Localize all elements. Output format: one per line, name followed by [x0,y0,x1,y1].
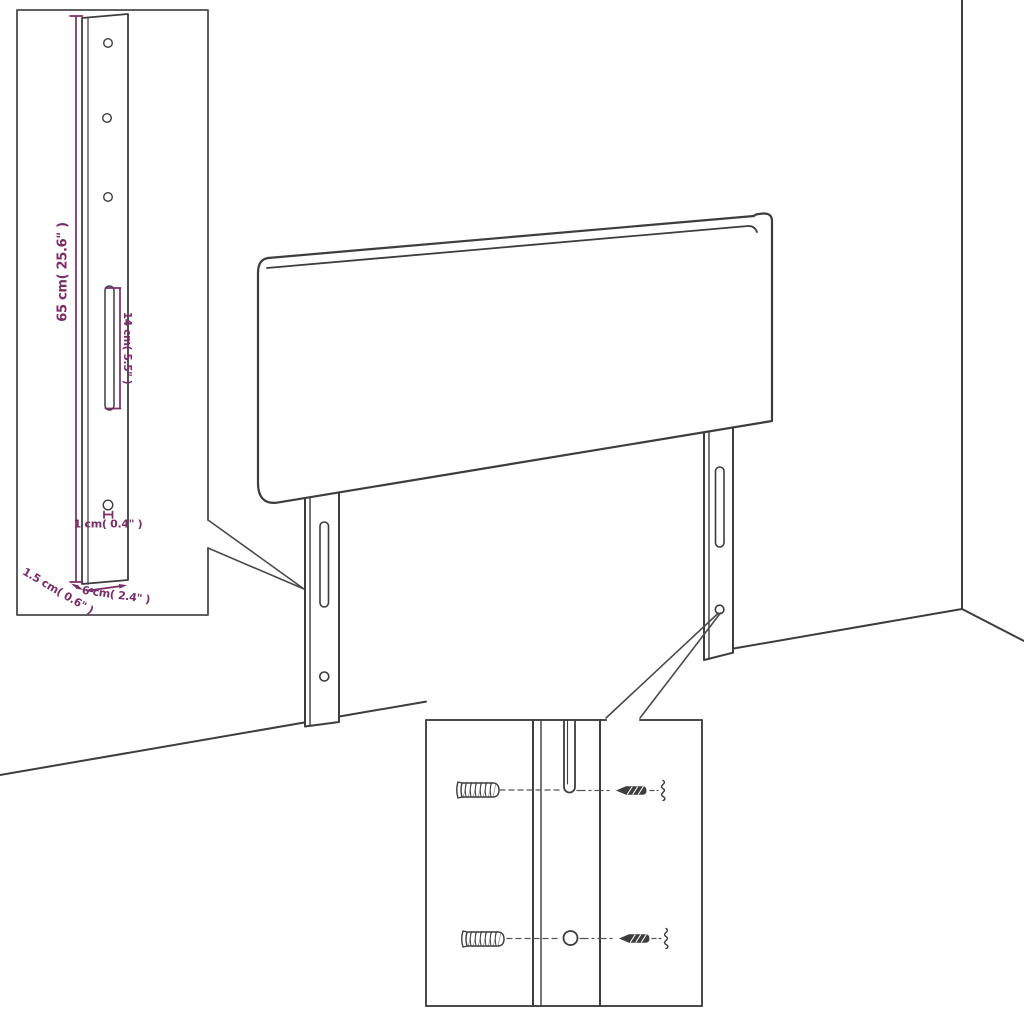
wall-squiggle-icon [662,781,665,801]
mounting-slot [564,720,575,793]
bracket-slot [105,286,114,410]
dimension-65cm-line [70,16,83,582]
product-diagram: 65 cm( 25.6" ) 14 cm( 5.5" ) 1 cm( 0.4" … [0,0,1024,1024]
bracket-drawing [82,14,128,584]
leg-hole [320,672,329,681]
bracket-hole [104,39,113,48]
screw-icon [619,934,650,943]
leg-closeup [533,720,600,1006]
leg-slot [716,467,725,547]
mounting-detail-inset [426,720,702,1006]
headboard-leg-left [305,492,339,726]
floor-left-line [0,609,962,775]
screw-icon [616,786,647,795]
dimension-lines [70,16,124,591]
panel-top-seam [267,226,757,268]
floor-right-line [962,609,1024,641]
dimension-14cm-line [106,288,121,409]
diagram-lineart [0,0,1024,1024]
panel-outline [258,213,772,502]
wall-plug-icon [462,931,504,947]
leg-slot [320,522,329,607]
headboard-leg-right [704,427,733,660]
detail-callout-left [208,520,304,589]
wall-squiggle-icon [665,929,668,949]
leg-hole [715,605,724,614]
alignment-dashes [500,790,661,939]
room-corner-lines [0,0,1024,775]
dimension-hole-diameter-label: 1 cm( 0.4" ) [74,518,143,531]
anchor-hole [564,931,578,945]
headboard-panel [258,213,772,502]
wall-plug-icon [457,782,499,798]
dimension-height-label: 65 cm( 25.6" ) [56,222,71,321]
bracket-hole [104,193,113,202]
bracket-hole [103,500,113,510]
bracket-hole [103,114,112,123]
dimension-slot-length-label: 14 cm( 5.5" ) [121,312,133,385]
